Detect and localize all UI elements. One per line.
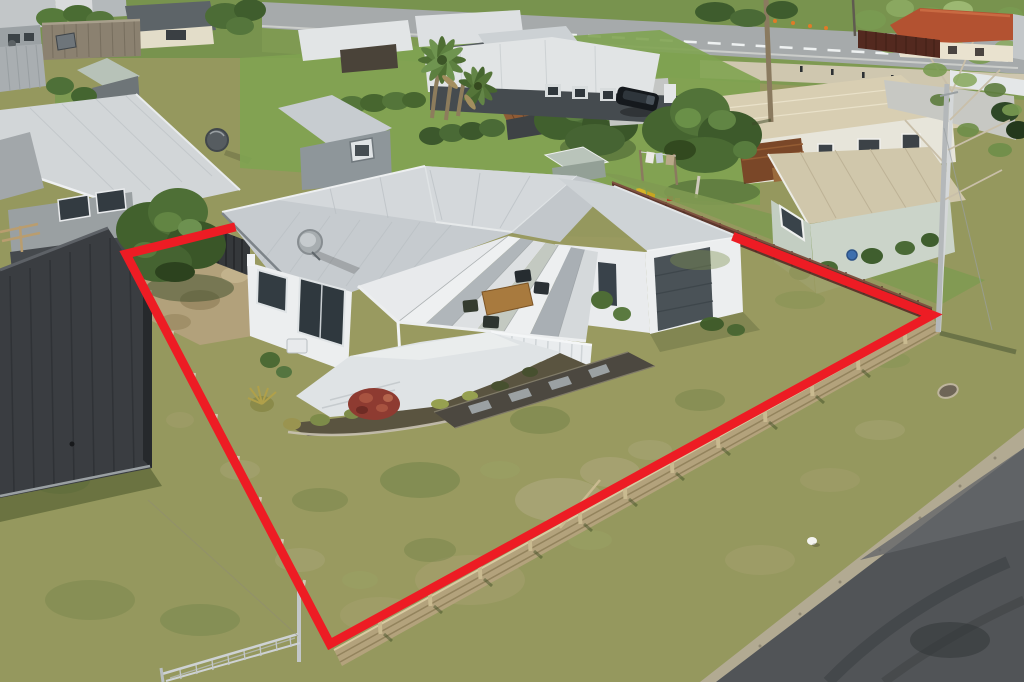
edge-house	[1013, 14, 1024, 60]
chair	[533, 281, 549, 295]
shrub	[613, 307, 631, 321]
corrugated-roof	[0, 44, 46, 92]
window	[166, 30, 186, 40]
shrub	[591, 291, 613, 309]
dark-patch	[910, 622, 990, 658]
chair	[514, 269, 532, 283]
chair	[483, 315, 500, 328]
window	[24, 33, 34, 41]
window	[96, 189, 126, 213]
heat-pump	[287, 339, 307, 353]
red-bush	[348, 388, 400, 420]
satellite-dish	[206, 129, 228, 151]
garage-window-glass	[355, 145, 369, 156]
meter-box	[247, 254, 255, 266]
white-object-shadow	[812, 543, 820, 547]
dark-wall-edge	[143, 290, 152, 468]
chair	[462, 299, 478, 313]
aerial-photo-canvas	[0, 0, 1024, 682]
blue-barrel	[847, 250, 857, 260]
window	[58, 195, 90, 221]
roof-vent	[70, 442, 75, 447]
solar-panel	[56, 33, 76, 50]
dish-face	[300, 233, 316, 247]
aerial-photo	[0, 0, 1024, 682]
